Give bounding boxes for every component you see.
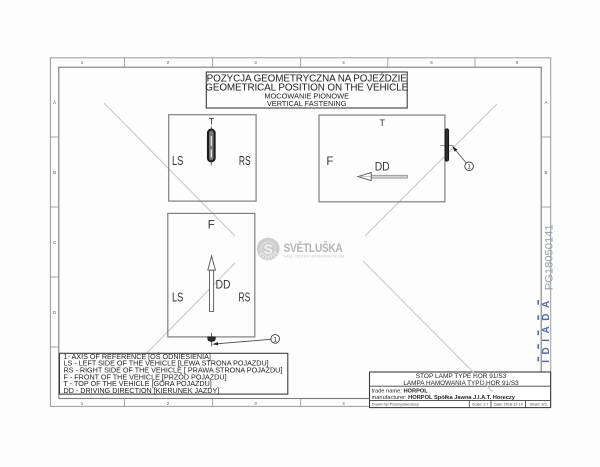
svg-text:LS: LS (172, 291, 183, 305)
svg-text:Scale: 1:7: Scale: 1:7 (472, 403, 488, 407)
svg-text:manufacturer: HORPOL Spółka Ja: manufacturer: HORPOL Spółka Jawna J.I.A.… (372, 395, 516, 401)
svg-text:PG18050141: PG18050141 (543, 224, 555, 290)
svg-text:Date: 2018-12-19: Date: 2018-12-19 (494, 403, 523, 407)
svg-text:B: B (53, 170, 56, 175)
svg-text:B: B (544, 170, 547, 175)
svg-text:VAŠE CESTA K NÁHRADNÍM DÍLŮM: VAŠE CESTA K NÁHRADNÍM DÍLŮM (284, 254, 344, 259)
svg-text:Sheet: 3/3: Sheet: 3/3 (530, 403, 547, 407)
svg-text:VERTICAL FASTENING: VERTICAL FASTENING (267, 99, 347, 108)
svg-text:trade name: HORPOL: trade name: HORPOL (372, 389, 429, 395)
svg-text:STOP LAMP TYPE HOR 91/S3: STOP LAMP TYPE HOR 91/S3 (416, 373, 507, 380)
svg-text:RS: RS (239, 291, 251, 305)
svg-text:4: 4 (342, 401, 345, 406)
svg-text:4: 4 (342, 60, 345, 65)
svg-text:DD: DD (216, 279, 231, 292)
svg-text:RS: RS (239, 154, 251, 168)
svg-text:SVĚTLUŠKA: SVĚTLUŠKA (284, 240, 343, 255)
svg-text:F: F (326, 155, 333, 168)
svg-text:1: 1 (81, 60, 84, 65)
svg-text:T: T (209, 117, 215, 127)
svg-text:LS: LS (172, 154, 183, 168)
svg-text:LAMPA HAMOWANIA TYPU HOR 91/S3: LAMPA HAMOWANIA TYPU HOR 91/S3 (403, 380, 519, 387)
svg-text:S: S (264, 242, 273, 257)
svg-text:Drawn by/ Przemysław Bosy: Drawn by/ Przemysław Bosy (372, 403, 419, 407)
svg-text:2: 2 (167, 60, 170, 65)
svg-text:3: 3 (254, 401, 257, 406)
svg-text:2: 2 (167, 401, 170, 406)
svg-text:T: T (380, 118, 386, 128)
svg-text:F: F (208, 219, 215, 232)
svg-text:1: 1 (467, 164, 471, 171)
svg-text:DD - DRIVING DIRECTION [KIERUN: DD - DRIVING DIRECTION [KIERUNEK JAZDY] (64, 386, 220, 395)
svg-text:6: 6 (516, 60, 519, 65)
svg-text:3: 3 (254, 60, 257, 65)
svg-text:1: 1 (81, 401, 84, 406)
svg-text:5: 5 (430, 60, 433, 65)
svg-text:DD: DD (375, 161, 390, 174)
svg-text:1: 1 (273, 336, 277, 343)
